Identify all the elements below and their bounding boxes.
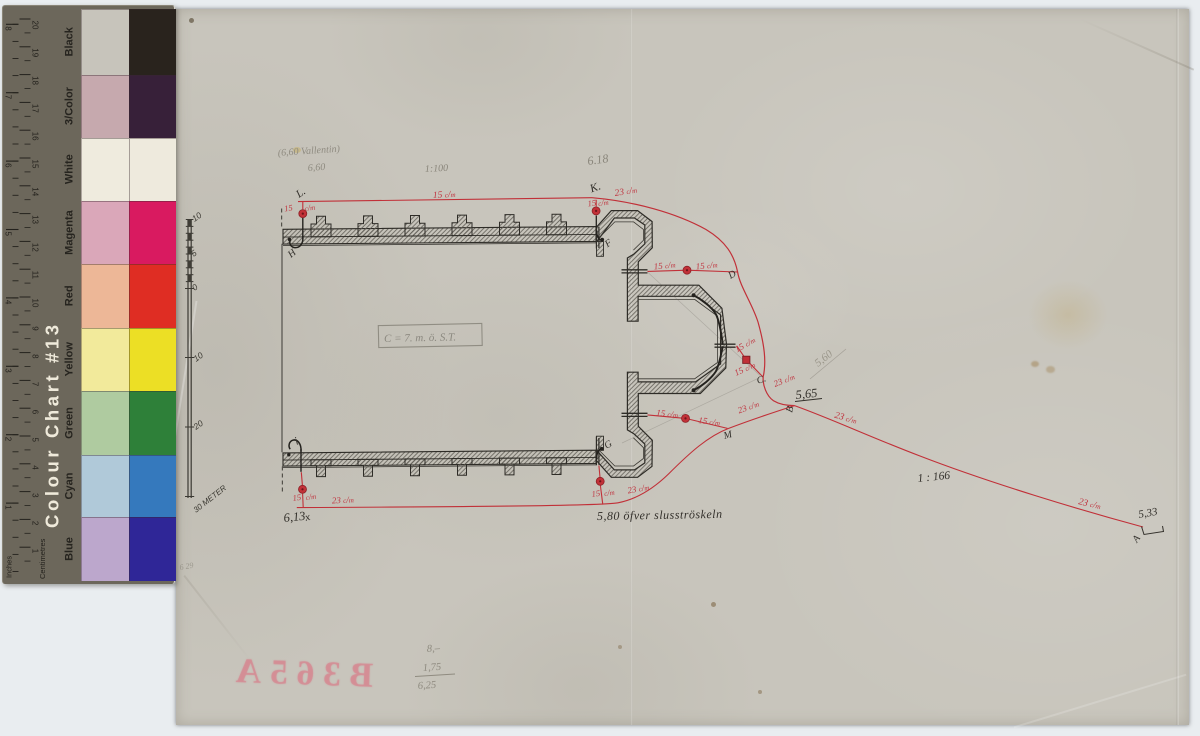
svg-text:10: 10 [31,299,40,308]
svg-text:15 c/m: 15 c/m [698,415,721,428]
svg-text:4: 4 [31,465,40,470]
svg-text:Magenta: Magenta [64,209,76,255]
svg-text:1 : 166: 1 : 166 [917,470,951,485]
svg-text:15 c/m: 15 c/m [653,259,676,271]
svg-text:15 c/m: 15 c/m [733,359,757,377]
svg-text:6,25: 6,25 [417,680,436,692]
svg-text:15: 15 [31,160,40,169]
svg-text:5: 5 [189,248,199,259]
svg-text:6: 6 [31,410,40,415]
svg-text:Green: Green [64,407,76,439]
svg-text:10: 10 [191,350,205,364]
svg-text:6,13: 6,13 [283,509,306,525]
svg-text:23 c/m: 23 c/m [627,482,650,496]
svg-text:17: 17 [31,104,40,113]
svg-text:5,33: 5,33 [1137,506,1159,521]
svg-text:5: 5 [31,438,40,443]
svg-text:5,60: 5,60 [812,348,835,370]
svg-text:6 29: 6 29 [179,561,194,572]
svg-text:3: 3 [31,493,40,498]
svg-text:2: 2 [31,521,40,526]
svg-text:13: 13 [31,215,40,224]
svg-text:11: 11 [31,271,40,280]
svg-text:1:100: 1:100 [425,163,449,175]
svg-text:6.18: 6.18 [586,151,609,168]
svg-text:12: 12 [31,243,40,252]
svg-text:16: 16 [31,132,40,141]
svg-text:3: 3 [4,368,13,373]
svg-text:30 METER: 30 METER [192,483,229,514]
svg-text:15 c/m: 15 c/m [656,408,679,420]
svg-text:19: 19 [31,48,40,57]
svg-text:23 c/m: 23 c/m [332,494,354,505]
svg-text:15: 15 [283,202,293,213]
svg-text:G: G [603,438,615,451]
svg-text:23 c/m: 23 c/m [772,371,796,388]
svg-text:M: M [721,429,734,442]
svg-text:c/m: c/m [304,202,316,213]
svg-text:18: 18 [31,76,40,85]
svg-text:1,75: 1,75 [422,662,441,674]
svg-text:(6,60 Vallentin): (6,60 Vallentin) [277,144,340,159]
svg-text:Red: Red [64,285,76,306]
svg-text:c/m: c/m [305,491,317,502]
svg-text:23 c/m: 23 c/m [736,398,760,415]
svg-text:Inches: Inches [5,556,14,578]
svg-text:20: 20 [191,418,206,432]
svg-text:15 c/m: 15 c/m [733,335,757,355]
svg-text:15 c/m: 15 c/m [695,259,718,271]
svg-text:Black: Black [64,26,76,56]
svg-text:B: B [784,405,796,414]
svg-text:Colour Chart #13: Colour Chart #13 [42,321,63,528]
svg-text:5,80 öfver slusströskeln: 5,80 öfver slusströskeln [597,507,723,523]
svg-text:Yellow: Yellow [64,342,76,377]
svg-text:L.: L. [293,186,308,201]
svg-text:Centimetres: Centimetres [38,538,47,579]
svg-text:White: White [64,154,76,184]
svg-text:i: i [293,435,301,447]
svg-text:K.: K. [587,180,602,195]
svg-text:4: 4 [4,300,13,305]
svg-text:C.: C. [755,373,767,386]
svg-text:9: 9 [31,326,40,331]
svg-text:23 c/m: 23 c/m [833,411,858,427]
svg-text:c/m: c/m [603,487,615,498]
svg-text:7: 7 [4,95,13,100]
svg-text:14: 14 [31,187,40,196]
svg-text:F: F [602,237,615,251]
svg-text:A: A [1130,533,1144,546]
svg-text:8,–: 8,– [426,643,441,655]
svg-text:C = 7. m. ö. S.T.: C = 7. m. ö. S.T. [384,331,456,345]
svg-text:Blue: Blue [64,537,76,561]
svg-text:6: 6 [4,163,13,168]
svg-text:10: 10 [190,210,204,224]
svg-text:2: 2 [4,437,13,442]
svg-text:H: H [285,247,299,261]
svg-text:15: 15 [587,197,597,208]
svg-text:7: 7 [31,382,40,387]
svg-text:8: 8 [31,354,40,359]
svg-text:15: 15 [591,488,601,499]
svg-text:5: 5 [4,232,13,237]
svg-text:8: 8 [4,26,13,31]
svg-text:Cyan: Cyan [64,472,76,499]
svg-text:1: 1 [4,505,13,510]
svg-text:3/Color: 3/Color [64,86,76,125]
svg-text:20: 20 [31,21,40,30]
svg-text:6,60: 6,60 [307,162,325,174]
svg-text:23 c/m: 23 c/m [614,186,638,199]
svg-text:15: 15 [292,492,302,503]
